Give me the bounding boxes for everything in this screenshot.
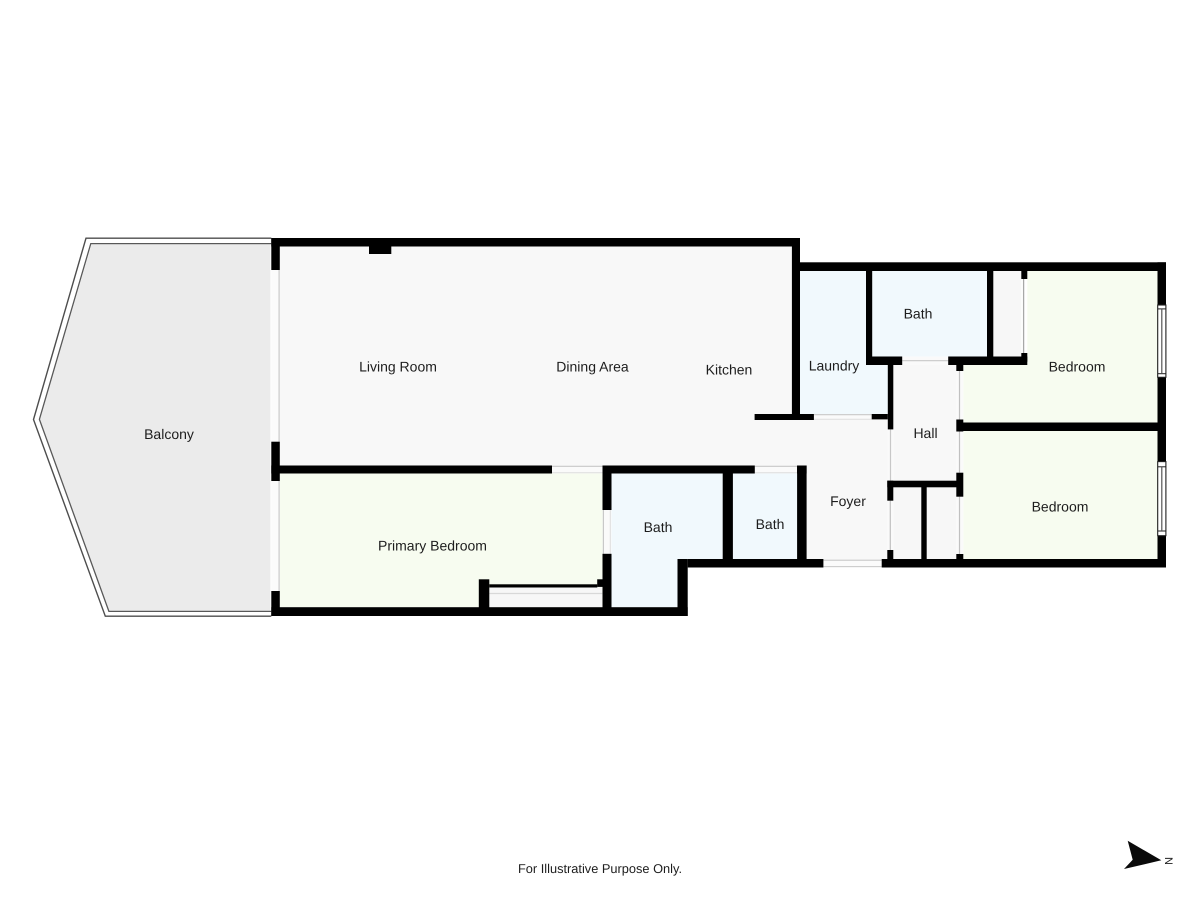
svg-text:N: N [1162, 857, 1174, 865]
svg-text:Bedroom: Bedroom [1049, 359, 1106, 375]
svg-text:Living Room: Living Room [359, 359, 437, 375]
svg-text:For Illustrative Purpose Only.: For Illustrative Purpose Only. [518, 861, 682, 876]
svg-text:Dining Area: Dining Area [556, 359, 629, 375]
svg-text:Balcony: Balcony [144, 426, 194, 442]
svg-text:Bath: Bath [756, 516, 785, 532]
svg-text:Kitchen: Kitchen [706, 362, 753, 378]
svg-text:Primary Bedroom: Primary Bedroom [378, 538, 487, 554]
svg-text:Foyer: Foyer [830, 493, 866, 509]
svg-text:Bedroom: Bedroom [1032, 499, 1089, 515]
svg-text:Hall: Hall [913, 425, 937, 441]
svg-text:Bath: Bath [644, 519, 673, 535]
svg-text:Laundry: Laundry [809, 358, 860, 374]
svg-text:Bath: Bath [904, 306, 933, 322]
